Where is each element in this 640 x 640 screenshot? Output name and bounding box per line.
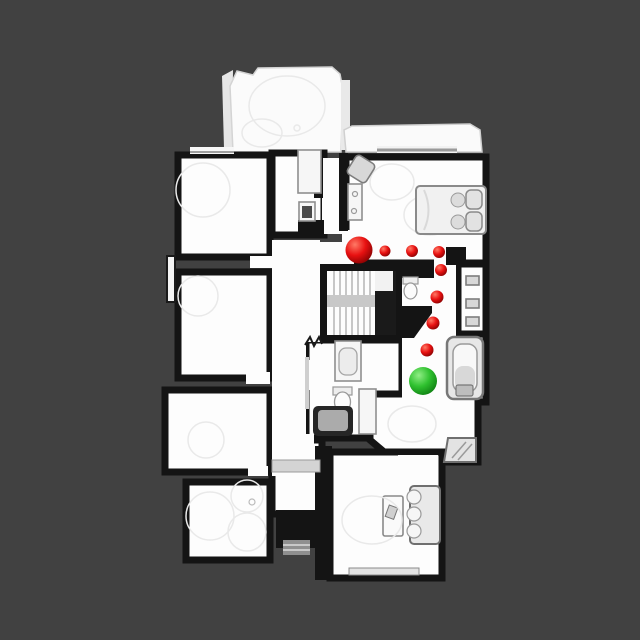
dark-tub-icon (313, 406, 353, 436)
corner-cabinet-icon (444, 438, 476, 462)
deck-area (222, 67, 350, 152)
window-bedroom-top (377, 146, 457, 153)
waypoint-marker[interactable] (380, 246, 391, 257)
bathtub-icon (447, 337, 483, 399)
powder-toilet-icon (403, 277, 418, 299)
window-top-left (190, 147, 234, 154)
room-lower-left (165, 390, 270, 472)
waypoint-marker[interactable] (435, 264, 447, 276)
closet-shelf-icons (466, 276, 479, 326)
waypoint-marker[interactable] (421, 344, 434, 357)
floorplan-map[interactable] (0, 0, 640, 640)
waypoint-marker[interactable] (433, 246, 445, 258)
waypoint-marker[interactable] (431, 291, 444, 304)
room-mid-left (178, 272, 270, 378)
couch-icon (407, 486, 440, 544)
window-left-wall (167, 256, 175, 302)
goal-marker[interactable] (409, 367, 437, 395)
staircase-icon (320, 264, 402, 342)
nightstand-icon (348, 184, 362, 220)
window-living-bottom (349, 568, 419, 575)
start-marker[interactable] (346, 237, 373, 264)
waypoint-marker[interactable] (406, 245, 418, 257)
render-viewport[interactable] (0, 0, 640, 640)
waypoint-marker[interactable] (427, 317, 440, 330)
